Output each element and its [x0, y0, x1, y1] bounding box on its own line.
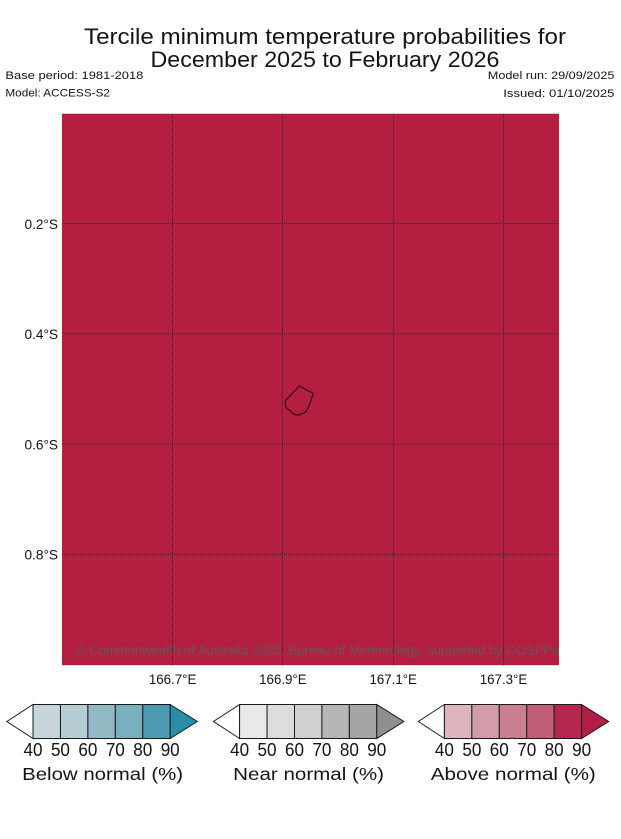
svg-text:60: 60 [490, 740, 509, 760]
svg-text:70: 70 [106, 740, 125, 760]
svg-text:0.4°S: 0.4°S [25, 326, 59, 342]
svg-text:90: 90 [161, 740, 180, 760]
svg-text:0.6°S: 0.6°S [25, 436, 59, 452]
svg-text:70: 70 [517, 740, 536, 760]
svg-text:Above normal (%): Above normal (%) [431, 764, 596, 784]
svg-text:70: 70 [312, 740, 331, 760]
svg-text:166.9°E: 166.9°E [259, 671, 307, 687]
svg-text:40: 40 [24, 740, 43, 760]
svg-text:166.7°E: 166.7°E [149, 671, 197, 687]
svg-text:40: 40 [435, 740, 454, 760]
svg-text:50: 50 [258, 740, 277, 760]
svg-text:167.1°E: 167.1°E [369, 671, 417, 687]
svg-text:90: 90 [572, 740, 591, 760]
svg-text:Issued: 01/10/2025: Issued: 01/10/2025 [503, 88, 614, 100]
svg-text:Tercile minimum temperature pr: Tercile minimum temperature probabilitie… [84, 24, 567, 49]
svg-text:Near normal (%): Near normal (%) [233, 764, 384, 784]
svg-text:90: 90 [367, 740, 386, 760]
svg-text:Model run: 29/09/2025: Model run: 29/09/2025 [488, 70, 615, 82]
svg-text:© Commonwealth of Australia 20: © Commonwealth of Australia 2025, Bureau… [76, 644, 566, 658]
svg-text:0.2°S: 0.2°S [25, 216, 59, 232]
svg-text:0.8°S: 0.8°S [25, 547, 59, 563]
svg-text:60: 60 [78, 740, 97, 760]
svg-text:December 2025 to February 2026: December 2025 to February 2026 [151, 47, 500, 72]
svg-text:60: 60 [285, 740, 304, 760]
svg-text:50: 50 [462, 740, 481, 760]
svg-text:80: 80 [133, 740, 152, 760]
svg-text:167.3°E: 167.3°E [480, 671, 528, 687]
svg-text:Base period: 1981-2018: Base period: 1981-2018 [5, 70, 143, 82]
svg-text:80: 80 [340, 740, 359, 760]
svg-text:40: 40 [230, 740, 249, 760]
svg-text:Below normal (%): Below normal (%) [22, 764, 183, 784]
svg-text:50: 50 [51, 740, 70, 760]
svg-text:Model: ACCESS-S2: Model: ACCESS-S2 [5, 88, 110, 100]
svg-text:80: 80 [545, 740, 564, 760]
